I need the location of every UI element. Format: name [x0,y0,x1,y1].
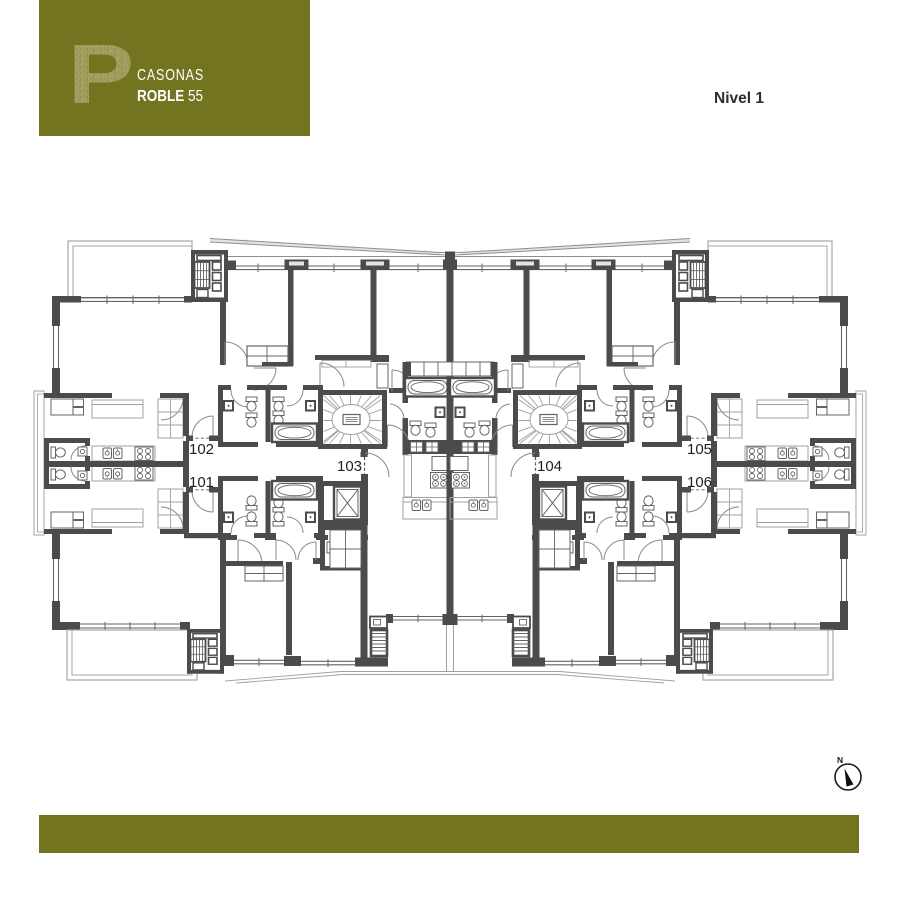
svg-text:P: P [68,28,134,121]
svg-text:ROBLE 55: ROBLE 55 [137,88,203,105]
svg-text:Nivel 1: Nivel 1 [714,90,764,107]
svg-text:CASONAS: CASONAS [137,67,204,84]
svg-text:105: 105 [687,441,712,458]
svg-text:104: 104 [537,458,562,475]
svg-text:101: 101 [189,474,214,491]
svg-text:102: 102 [189,441,214,458]
svg-text:106: 106 [687,474,712,491]
svg-text:N: N [837,755,843,765]
svg-text:103: 103 [337,458,362,475]
